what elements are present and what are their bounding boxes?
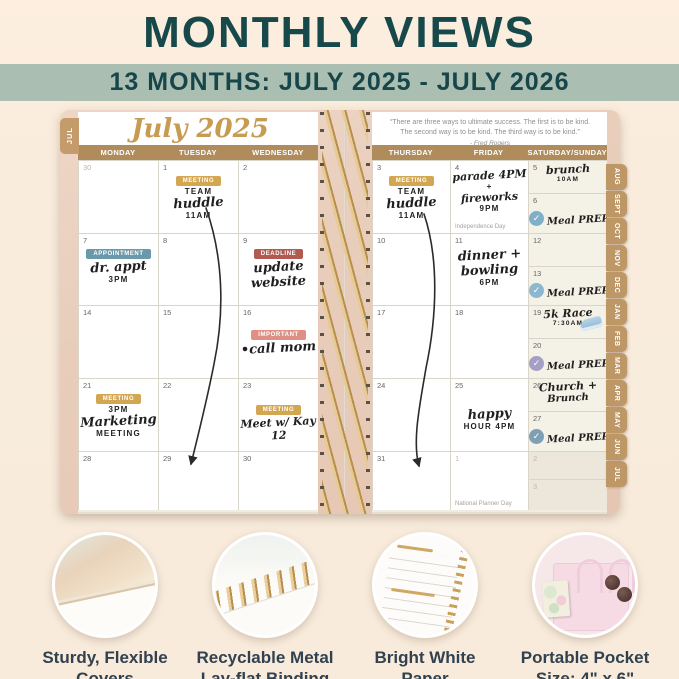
planner-spread: July 2025 “There are three ways to ultim… bbox=[60, 106, 645, 518]
date-number: 1 bbox=[163, 163, 167, 172]
covers-photo bbox=[52, 532, 158, 638]
day-header-satsun: SATURDAY/SUNDAY bbox=[528, 148, 608, 157]
month-tab-column: AUG SEPT OCT NOV DEC JAN FEB MAR APR MAY… bbox=[606, 164, 627, 488]
caption-line: Paper bbox=[335, 668, 515, 679]
meeting-badge: MEETING bbox=[389, 176, 435, 186]
date-number: 2 bbox=[533, 454, 537, 463]
deadline-badge: DEADLINE bbox=[254, 249, 303, 259]
date-number: 27 bbox=[533, 414, 541, 423]
day-header-thursday: THURSDAY bbox=[372, 148, 450, 157]
tab-label: APR bbox=[613, 385, 620, 401]
caption-line: Recyclable Metal bbox=[175, 647, 355, 668]
calendar-cell-jul17: 17 bbox=[372, 305, 450, 378]
tab-label: JUN bbox=[613, 439, 620, 455]
calendar-cell-jul30: 30 bbox=[238, 451, 318, 510]
day-header-tuesday: TUESDAY bbox=[158, 148, 238, 157]
handwriting: website bbox=[239, 273, 318, 292]
date-number: 3 bbox=[533, 482, 537, 491]
tote-strap bbox=[577, 559, 603, 593]
tab-label: AUG bbox=[613, 168, 620, 185]
tab-sept: SEPT bbox=[606, 191, 627, 217]
calendar-cell-jul11: 11 dinner + bowling 6PM bbox=[450, 233, 528, 305]
date-number: 25 bbox=[455, 381, 463, 390]
handwriting: Meal PREP bbox=[547, 358, 607, 372]
meeting-badge: MEETING bbox=[176, 176, 222, 186]
important-badge: IMPORTANT bbox=[251, 330, 306, 340]
calendar-cell-jul16: 16 IMPORTANT •call mom bbox=[238, 305, 318, 378]
date-number: 8 bbox=[163, 236, 167, 245]
spiral-holes bbox=[366, 112, 370, 512]
subtitle-banner: 13 MONTHS: JULY 2025 - JULY 2026 bbox=[0, 64, 679, 101]
date-number: 29 bbox=[163, 454, 171, 463]
date-number: 30 bbox=[83, 163, 91, 172]
paper-photo bbox=[372, 532, 478, 638]
calendar-cell-jul3: 3 MEETING TEAM huddle 11AM bbox=[372, 160, 450, 233]
tab-label: JUL bbox=[613, 467, 620, 482]
page-title: MONTHLY VIEWS bbox=[0, 8, 679, 58]
caption-line: Lay-flat Binding bbox=[175, 668, 355, 679]
date-number: 17 bbox=[377, 308, 385, 317]
meeting-badge: MEETING bbox=[96, 394, 142, 404]
quote-line: The second way is to be kind. The third … bbox=[376, 128, 604, 138]
caption-line: Size: 4" x 6" bbox=[495, 668, 675, 679]
spiral-holes bbox=[320, 112, 324, 512]
tab-label: JAN bbox=[613, 304, 620, 320]
caption-line: Covers bbox=[15, 668, 195, 679]
meeting-badge: MEETING bbox=[256, 405, 302, 415]
date-number: 12 bbox=[533, 236, 541, 245]
feature-caption: Sturdy, Flexible Covers bbox=[15, 647, 195, 679]
calendar-cell-jul9: 9 DEADLINE update website bbox=[238, 233, 318, 305]
check-icon: ✓ bbox=[529, 283, 544, 298]
tab-jul-current: JUL bbox=[60, 118, 79, 154]
date-number: 10 bbox=[377, 236, 385, 245]
tab-label: MAY bbox=[613, 412, 620, 428]
feature-binding: Recyclable Metal Lay-flat Binding bbox=[175, 532, 355, 679]
day-header-friday: FRIDAY bbox=[450, 148, 528, 157]
date-number: 16 bbox=[243, 308, 251, 317]
check-icon: ✓ bbox=[529, 356, 544, 371]
calendar-cell-jun30: 30 bbox=[78, 160, 158, 233]
spiral-coils bbox=[322, 110, 368, 514]
feature-caption: Recyclable Metal Lay-flat Binding bbox=[175, 647, 355, 679]
tab-oct: OCT bbox=[606, 218, 627, 244]
tab-label: JUL bbox=[65, 127, 74, 144]
date-number: 2 bbox=[243, 163, 247, 172]
calendar-cell-jul12: 12 bbox=[528, 233, 607, 266]
date-number: 15 bbox=[163, 308, 171, 317]
tab-mar: MAR bbox=[606, 353, 627, 379]
tab-aug: AUG bbox=[606, 164, 627, 190]
calendar-cell-aug1: 1 National Planner Day bbox=[450, 451, 528, 510]
calendar-cell-jul15: 15 bbox=[158, 305, 238, 378]
date-number: 13 bbox=[533, 269, 541, 278]
date-number: 1 bbox=[455, 454, 459, 463]
calendar-cell-jul24: 24 bbox=[372, 378, 450, 451]
month-title: July 2025 bbox=[100, 114, 300, 144]
handwriting: Meal PREP bbox=[547, 431, 607, 445]
feature-covers: Sturdy, Flexible Covers bbox=[15, 532, 195, 679]
tab-label: FEB bbox=[613, 331, 620, 347]
day-header-row-left: MONDAY TUESDAY WEDNESDAY bbox=[78, 145, 318, 160]
tab-label: SEPT bbox=[613, 194, 620, 214]
calendar-cell-jul25: 25 happy HOUR 4PM bbox=[450, 378, 528, 451]
tab-label: MAR bbox=[613, 357, 620, 374]
tab-nov: NOV bbox=[606, 245, 627, 271]
calendar-cell-jul13: 13 ✓Meal PREP bbox=[528, 266, 607, 305]
date-number: 31 bbox=[377, 454, 385, 463]
quote-line: “There are three ways to ultimate succes… bbox=[376, 118, 604, 128]
tote-photo bbox=[532, 532, 638, 638]
caption-line: Bright White bbox=[335, 647, 515, 668]
calendar-cell-jul6: 6 ✓Meal PREP bbox=[528, 193, 607, 233]
holiday-label: Independence Day bbox=[455, 224, 505, 230]
tab-label: OCT bbox=[613, 223, 620, 239]
calendar-cell-jul31: 31 bbox=[372, 451, 450, 510]
binding-photo bbox=[212, 532, 318, 638]
feature-pocket-size: Portable Pocket Size: 4" x 6" bbox=[495, 532, 675, 679]
handwriting: Meet w/ Kay 12 bbox=[238, 414, 318, 444]
tab-label: NOV bbox=[613, 250, 620, 267]
day-header-monday: MONDAY bbox=[78, 148, 158, 157]
caption-line: Portable Pocket bbox=[495, 647, 675, 668]
date-number: 30 bbox=[243, 454, 251, 463]
date-number: 20 bbox=[533, 341, 541, 350]
tab-apr: APR bbox=[606, 380, 627, 406]
check-icon: ✓ bbox=[529, 211, 544, 226]
calendar-cell-jul26: 26 Church + Brunch bbox=[528, 378, 607, 411]
tab-may: MAY bbox=[606, 407, 627, 433]
calendar-cell-aug3: 3 bbox=[528, 479, 607, 510]
handwriting: •call mom bbox=[239, 339, 318, 358]
day-header-row-right: THURSDAY FRIDAY SATURDAY/SUNDAY bbox=[372, 145, 607, 160]
calendar-cell-jul20: 20 ✓Meal PREP bbox=[528, 338, 607, 378]
date-number: 6 bbox=[533, 196, 537, 205]
day-header-wednesday: WEDNESDAY bbox=[238, 148, 318, 157]
handwriting: Meal PREP bbox=[547, 285, 607, 299]
calendar-cell-jul18: 18 bbox=[450, 305, 528, 378]
calendar-cell-jul1: 1 MEETING TEAM huddle 11AM bbox=[158, 160, 238, 233]
calendar-cell-jul8: 8 bbox=[158, 233, 238, 305]
handwriting: Meal PREP bbox=[547, 213, 607, 227]
date-number: 23 bbox=[243, 381, 251, 390]
calendar-cell-jul14: 14 bbox=[78, 305, 158, 378]
calendar-cell-jul29: 29 bbox=[158, 451, 238, 510]
date-number: 9 bbox=[243, 236, 247, 245]
sunglasses-icon bbox=[605, 575, 620, 590]
feature-paper: Bright White Paper bbox=[335, 532, 515, 679]
date-number: 22 bbox=[163, 381, 171, 390]
calendar-cell-aug2: 2 bbox=[528, 451, 607, 479]
calendar-cell-jul2: 2 bbox=[238, 160, 318, 233]
calendar-cell-jul19: 19 5k Race 7:30AM bbox=[528, 305, 607, 338]
date-number: 24 bbox=[377, 381, 385, 390]
spiral-binding bbox=[318, 106, 372, 518]
date-number: 28 bbox=[83, 454, 91, 463]
appointment-badge: APPOINTMENT bbox=[86, 249, 150, 259]
tab-dec: DEC bbox=[606, 272, 627, 298]
date-number: 21 bbox=[83, 381, 91, 390]
caption-line: Sturdy, Flexible bbox=[15, 647, 195, 668]
date-number: 3 bbox=[377, 163, 381, 172]
tab-jun: JUN bbox=[606, 434, 627, 460]
calendar-cell-jul10: 10 bbox=[372, 233, 450, 305]
calendar-cell-jul27: 27 ✓Meal PREP bbox=[528, 411, 607, 451]
calendar-cell-jul5: 5 brunch 10AM bbox=[528, 160, 607, 193]
sunglasses-icon bbox=[617, 587, 632, 602]
pocket-planner bbox=[542, 580, 570, 618]
calendar-cell-jul7: 7 APPOINTMENT dr. appt 3PM bbox=[78, 233, 158, 305]
quote-block: “There are three ways to ultimate succes… bbox=[376, 118, 604, 147]
holiday-label: National Planner Day bbox=[455, 501, 512, 507]
date-number: 14 bbox=[83, 308, 91, 317]
date-number: 18 bbox=[455, 308, 463, 317]
tab-feb: FEB bbox=[606, 326, 627, 352]
date-number: 11 bbox=[455, 236, 463, 245]
calendar-cell-jul28: 28 bbox=[78, 451, 158, 510]
tab-jul: JUL bbox=[606, 461, 627, 487]
check-icon: ✓ bbox=[529, 429, 544, 444]
calendar-cell-jul23: 23 MEETING Meet w/ Kay 12 bbox=[238, 378, 318, 451]
subtitle-text: 13 MONTHS: JULY 2025 - JULY 2026 bbox=[109, 68, 569, 97]
feature-caption: Bright White Paper bbox=[335, 647, 515, 679]
calendar-cell-jul4: 4 parade 4PM + fireworks 9PM Independenc… bbox=[450, 160, 528, 233]
tab-label: DEC bbox=[613, 277, 620, 293]
date-number: 7 bbox=[83, 236, 87, 245]
feature-caption: Portable Pocket Size: 4" x 6" bbox=[495, 647, 675, 679]
calendar-cell-jul21: 21 MEETING 3PM Marketing MEETING bbox=[78, 378, 158, 451]
calendar-cell-jul22: 22 bbox=[158, 378, 238, 451]
tab-jan: JAN bbox=[606, 299, 627, 325]
